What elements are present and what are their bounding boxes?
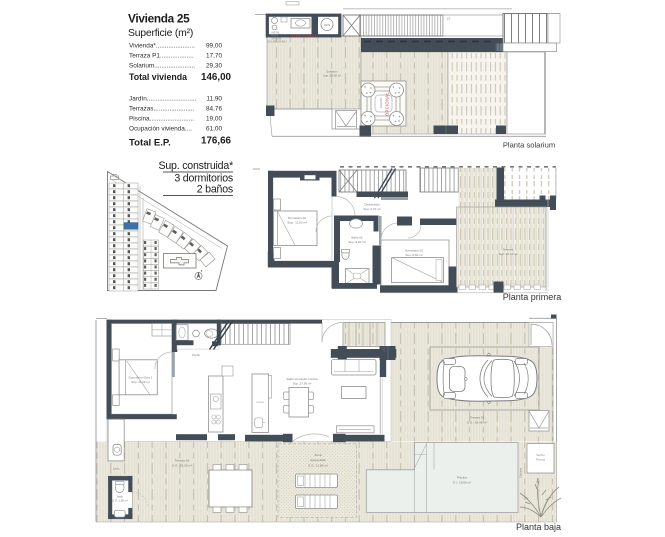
- svg-text:Piscina.......................: Piscina.........................: [129, 116, 194, 123]
- svg-text:Terraza P1...................: Terraza P1...................: [129, 53, 194, 60]
- svg-text:Zona: Zona: [314, 453, 321, 457]
- svg-text:Sup.:15,74 m²: Sup.:15,74 m²: [499, 252, 518, 256]
- svg-text:Distribuidor: Distribuidor: [364, 203, 379, 207]
- svg-text:Terraza 01: Terraza 01: [470, 416, 485, 420]
- svg-text:Planta solarium: Planta solarium: [503, 141, 555, 150]
- svg-text:cocina: cocina: [256, 400, 264, 404]
- svg-text:Planta baja: Planta baja: [516, 522, 561, 532]
- svg-text:Superficie (m²): Superficie (m²): [128, 28, 193, 39]
- svg-text:S.Ú.: 26,30 m²: S.Ú.: 26,30 m²: [172, 464, 192, 468]
- svg-text:Súp.:11,29 m²: Súp.:11,29 m²: [131, 380, 150, 384]
- svg-text:OPCIONAL: OPCIONAL: [292, 34, 318, 39]
- svg-text:S.Ú.: 53,46 m²: S.Ú.: 53,46 m²: [467, 421, 487, 425]
- svg-text:SOLARIUM BAJ.: SOLARIUM BAJ.: [268, 40, 288, 44]
- svg-text:Baño 02: Baño 02: [351, 236, 363, 240]
- svg-text:Solarium......................: Solarium.......................: [129, 63, 195, 70]
- svg-text:Dormitorio 03: Dormitorio 03: [405, 249, 423, 253]
- svg-text:Jardín........................: Jardín............................: [129, 96, 197, 103]
- svg-text:19,00: 19,00: [206, 116, 222, 123]
- svg-text:11,90: 11,90: [206, 96, 222, 103]
- svg-text:Sup.:2,70 m²: Sup.:2,70 m²: [363, 207, 380, 211]
- svg-text:61,00: 61,00: [206, 126, 222, 133]
- svg-text:JACUZZI: JACUZZI: [379, 97, 383, 108]
- svg-text:Terraza: Terraza: [503, 248, 513, 252]
- svg-text:Calzada: Calzada: [519, 467, 523, 478]
- svg-text:Súp.:27,90 m²: Súp.:27,90 m²: [293, 382, 312, 386]
- svg-text:apergolada: apergolada: [310, 458, 326, 462]
- svg-text:Sup.:29,30 m²: Sup.:29,30 m²: [323, 74, 341, 78]
- svg-text:2 baños: 2 baños: [197, 184, 233, 196]
- svg-text:Total E.P.: Total E.P.: [129, 138, 171, 149]
- svg-text:S.Ú.:1,60 m²: S.Ú.:1,60 m²: [112, 498, 128, 503]
- svg-text:Sup. construida*: Sup. construida*: [158, 160, 233, 172]
- svg-text:Total vivienda: Total vivienda: [129, 72, 187, 82]
- svg-text:OPCIONAL: OPCIONAL: [385, 92, 390, 116]
- svg-text:S.Ú.: 11,80 m²: S.Ú.: 11,80 m²: [308, 464, 328, 468]
- svg-text:17: 17: [447, 17, 451, 21]
- svg-text:146,00: 146,00: [201, 72, 232, 83]
- svg-text:Dormitorio Guía 1: Dormitorio Guía 1: [129, 376, 153, 380]
- svg-text:29,30: 29,30: [206, 63, 222, 70]
- svg-text:S.l.: 19,00 m²: S.l.: 19,00 m²: [453, 481, 471, 485]
- svg-text:Dormitorio 02: Dormitorio 02: [288, 216, 306, 220]
- svg-text:Súp.: 11,00 m²: Súp.: 11,00 m²: [287, 221, 306, 225]
- svg-text:Terrazas......................: Terrazas.......................: [129, 106, 195, 113]
- svg-text:Vivienda*.....................: Vivienda*......................: [129, 43, 195, 50]
- svg-text:17,70: 17,70: [206, 53, 222, 60]
- svg-text:84,76: 84,76: [206, 106, 222, 113]
- svg-text:ACS: ACS: [324, 23, 330, 27]
- svg-text:Salón-Comedor-Cocina: Salón-Comedor-Cocina: [286, 377, 318, 381]
- svg-text:99,00: 99,00: [206, 43, 222, 50]
- svg-text:Sup.:4,20 m²: Sup.:4,20 m²: [348, 240, 365, 244]
- svg-text:Vivienda 25: Vivienda 25: [128, 12, 190, 26]
- svg-text:176,66: 176,66: [201, 136, 232, 147]
- svg-text:Piscina: Piscina: [457, 476, 467, 480]
- svg-text:Planta primera: Planta primera: [503, 292, 562, 302]
- svg-text:Vecino: Vecino: [536, 453, 545, 457]
- svg-text:Piscina: Piscina: [536, 458, 546, 462]
- svg-text:Sup.:9,60 m²: Sup.:9,60 m²: [405, 253, 422, 257]
- svg-text:Terraza 02: Terraza 02: [175, 459, 190, 463]
- svg-text:Lavo.: Lavo.: [113, 467, 121, 471]
- svg-text:Ocupación vivienda....: Ocupación vivienda....: [129, 126, 192, 133]
- svg-text:Pasillo: Pasillo: [192, 353, 201, 357]
